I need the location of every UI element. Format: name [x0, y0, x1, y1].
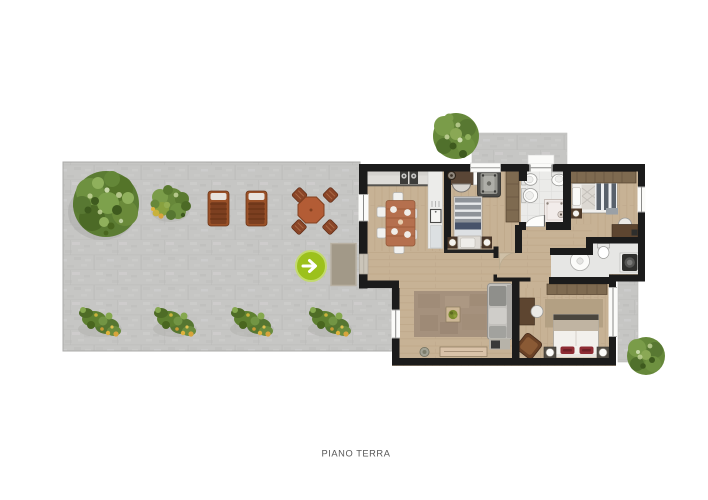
svg-text:PIANO TERRA: PIANO TERRA	[322, 449, 391, 459]
